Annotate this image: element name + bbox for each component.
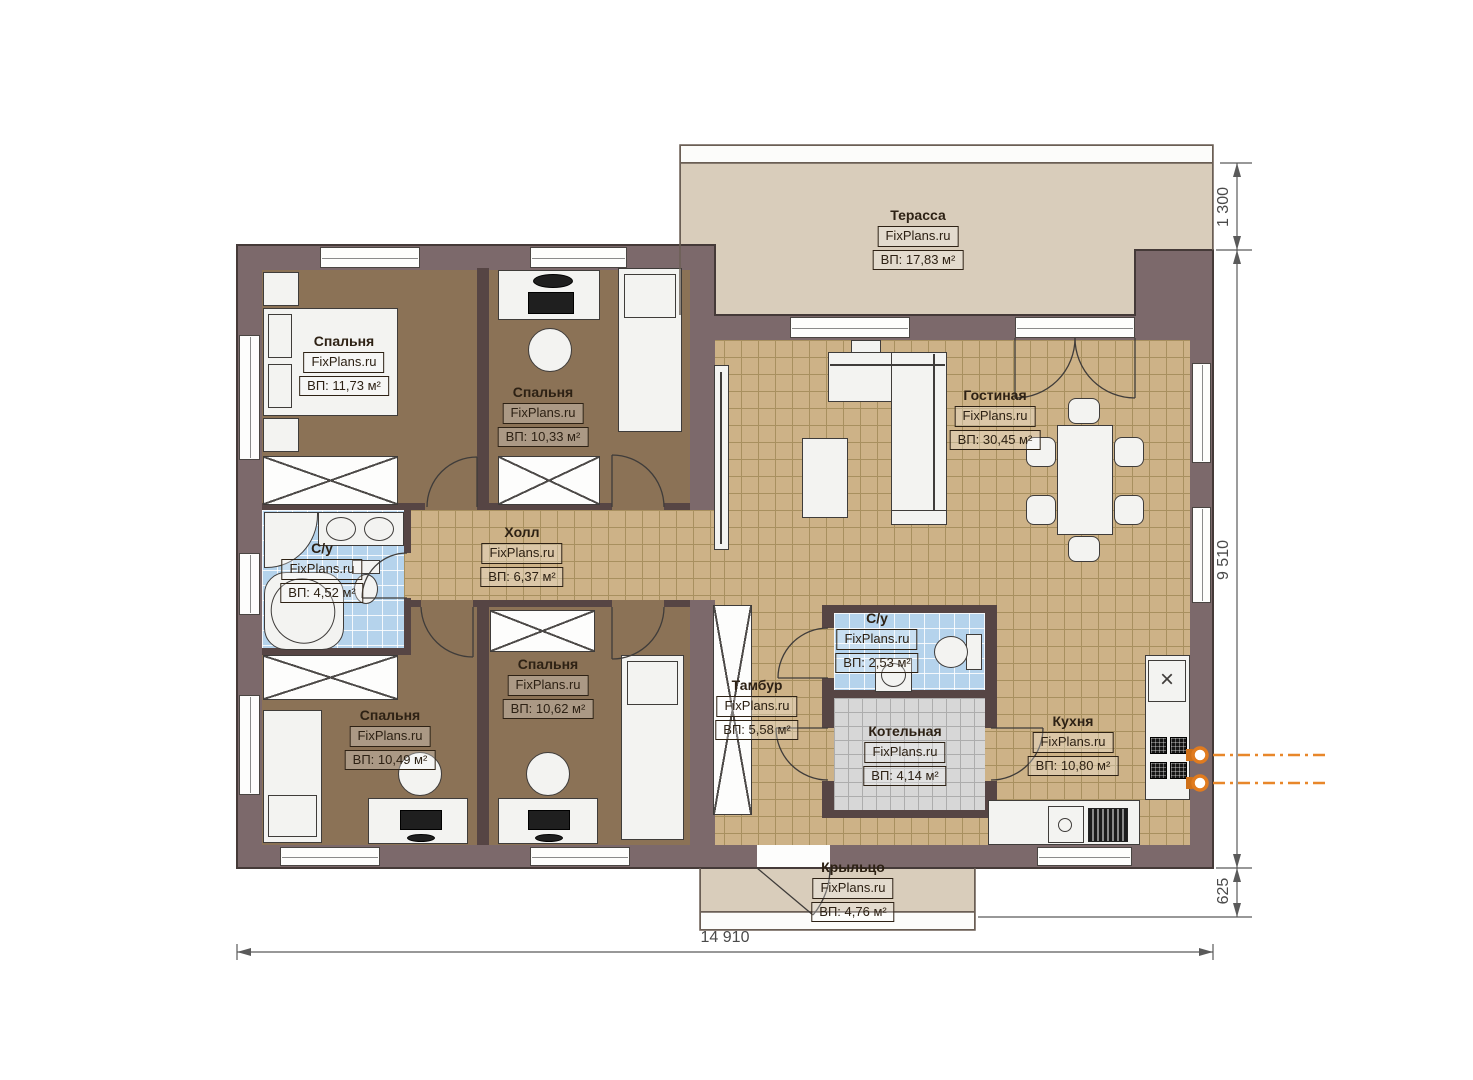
partition-bath1-right (404, 510, 411, 553)
washing-machine (1088, 808, 1128, 842)
dining-chair (1068, 536, 1100, 562)
room-name: С/у (280, 541, 363, 556)
dimension-width-label: 14 910 (701, 929, 750, 946)
dining-chair (1068, 398, 1100, 424)
wall-mid-upper (690, 245, 715, 510)
sink-cross-icon: × (1148, 660, 1186, 702)
dining-chair (1114, 437, 1144, 467)
dimension-house-label: 9 510 (1215, 540, 1232, 580)
wall-mid-lower (690, 600, 715, 845)
room-label-living: Гостиная FixPlans.ru ВП: 30,45 м² (950, 388, 1041, 450)
partition-hall-top (664, 503, 690, 510)
window-bedroom1-top (320, 247, 420, 268)
partition-bed3-bed4 (477, 607, 489, 845)
watermark: FixPlans.ru (1032, 732, 1113, 752)
room-area: ВП: 10,80 м² (1028, 756, 1119, 776)
window-bedroom1-left (239, 335, 260, 460)
stove-burner (1150, 737, 1167, 754)
wardrobe (498, 456, 600, 505)
sofa-seam (830, 364, 945, 366)
sink (326, 517, 356, 541)
window-bedroom3-bottom (280, 847, 380, 866)
window-living-right-1 (1192, 363, 1211, 463)
room-name: Котельная (863, 724, 946, 739)
room-name: Холл (480, 525, 563, 540)
room-label-bath1: С/у FixPlans.ru ВП: 4,52 м² (280, 541, 363, 603)
room-label-bedroom2: Спальня FixPlans.ru ВП: 10,33 м² (498, 385, 589, 447)
room-area: ВП: 10,49 м² (345, 750, 436, 770)
watermark: FixPlans.ru (877, 226, 958, 246)
room-label-bedroom4: Спальня FixPlans.ru ВП: 10,62 м² (503, 657, 594, 719)
dining-table (1057, 425, 1113, 535)
watermark: FixPlans.ru (502, 403, 583, 423)
partition-hall-bottom (473, 600, 612, 607)
room-label-porch: Крыльцо FixPlans.ru ВП: 4,76 м² (811, 860, 894, 922)
watermark: FixPlans.ru (812, 878, 893, 898)
office-chair (526, 752, 570, 796)
room-area: ВП: 30,45 м² (950, 430, 1041, 450)
watermark: FixPlans.ru (954, 406, 1035, 426)
watermark: FixPlans.ru (349, 726, 430, 746)
stove-burner (1150, 762, 1167, 779)
room-label-kitchen: Кухня FixPlans.ru ВП: 10,80 м² (1028, 714, 1119, 776)
pillow (268, 364, 292, 408)
tv-screen (720, 372, 722, 544)
wall-top-left-wing (237, 245, 715, 270)
partition-bed1-bed2 (477, 268, 489, 510)
room-area: ВП: 4,14 м² (863, 766, 946, 786)
pillow (624, 274, 676, 318)
window-living-top (790, 317, 910, 338)
partition-bath2-right (985, 613, 997, 728)
toilet-tank (966, 634, 982, 670)
sofa-seam (933, 354, 935, 510)
stove-burner (1170, 737, 1187, 754)
room-area: ВП: 6,37 м² (480, 567, 563, 587)
room-name: Спальня (503, 657, 594, 672)
sink (364, 517, 394, 541)
kitchen-sink-drain (1058, 818, 1072, 832)
sofa-armrest (891, 510, 947, 525)
floor-plan: × (0, 0, 1473, 1080)
partition-bath2-left (822, 678, 834, 728)
room-label-bedroom1: Спальня FixPlans.ru ВП: 11,73 м² (299, 334, 389, 396)
room-area: ВП: 10,33 м² (498, 427, 589, 447)
watermark: FixPlans.ru (836, 629, 917, 649)
laptop (528, 292, 574, 314)
watermark: FixPlans.ru (303, 352, 384, 372)
room-area: ВП: 10,62 м² (503, 699, 594, 719)
watermark: FixPlans.ru (507, 675, 588, 695)
room-name: Спальня (345, 708, 436, 723)
room-label-boiler: Котельная FixPlans.ru ВП: 4,14 м² (863, 724, 946, 786)
room-label-tambour: Тамбур FixPlans.ru ВП: 5,58 м² (715, 678, 798, 740)
nightstand (263, 418, 299, 452)
watermark: FixPlans.ru (864, 742, 945, 762)
wardrobe (263, 456, 398, 505)
computer-monitor (400, 810, 442, 830)
window-kitchen-bottom (1037, 847, 1132, 866)
printer (533, 274, 573, 288)
wall-corner-topright (1135, 250, 1213, 340)
coffee-table (802, 438, 848, 518)
nightstand (263, 272, 299, 306)
keyboard (407, 834, 435, 842)
room-label-bedroom3: Спальня FixPlans.ru ВП: 10,49 м² (345, 708, 436, 770)
wardrobe (263, 655, 398, 700)
pillow (268, 795, 317, 837)
room-area: ВП: 2,53 м² (835, 653, 918, 673)
dining-chair (1026, 495, 1056, 525)
partition-bath2-left (822, 613, 834, 628)
pillow (268, 314, 292, 358)
room-name: Спальня (498, 385, 589, 400)
room-name: Крыльцо (811, 860, 894, 875)
room-area: ВП: 4,52 м² (280, 583, 363, 603)
room-area: ВП: 4,76 м² (811, 902, 894, 922)
room-label-bath2: С/у FixPlans.ru ВП: 2,53 м² (835, 611, 918, 673)
window-bedroom3-left (239, 695, 260, 795)
sofa (891, 352, 947, 512)
dining-chair (1114, 495, 1144, 525)
window-living-right-2 (1192, 507, 1211, 603)
dimension-terrace-label: 1 300 (1215, 187, 1232, 227)
room-area: ВП: 17,83 м² (873, 250, 964, 270)
partition-bath1-right (404, 598, 411, 655)
computer-monitor (528, 810, 570, 830)
pillow (627, 661, 678, 705)
room-name: Гостиная (950, 388, 1041, 403)
room-name: С/у (835, 611, 918, 626)
room-label-hall: Холл FixPlans.ru ВП: 6,37 м² (480, 525, 563, 587)
room-name: Терасса (873, 208, 964, 223)
watermark: FixPlans.ru (716, 696, 797, 716)
stove-burner (1170, 762, 1187, 779)
room-area: ВП: 11,73 м² (299, 376, 389, 396)
keyboard (535, 834, 563, 842)
window-bedroom2-top (530, 247, 627, 268)
partition-hall-bottom (664, 600, 690, 607)
room-label-terrace: Терасса FixPlans.ru ВП: 17,83 м² (873, 208, 964, 270)
partition-boiler-bottom (822, 810, 997, 818)
room-area: ВП: 5,58 м² (715, 720, 798, 740)
terrace-door (1015, 317, 1135, 338)
dimension-porch-label: 625 (1215, 878, 1232, 905)
partition-bath2-boiler (834, 690, 997, 698)
watermark: FixPlans.ru (281, 559, 362, 579)
window-bathroom1-left (239, 553, 260, 615)
room-name: Кухня (1028, 714, 1119, 729)
wardrobe (490, 610, 595, 652)
office-chair (528, 328, 572, 372)
window-bedroom4-bottom (530, 847, 630, 866)
room-name: Тамбур (715, 678, 798, 693)
toilet (934, 636, 968, 668)
room-name: Спальня (299, 334, 389, 349)
watermark: FixPlans.ru (481, 543, 562, 563)
